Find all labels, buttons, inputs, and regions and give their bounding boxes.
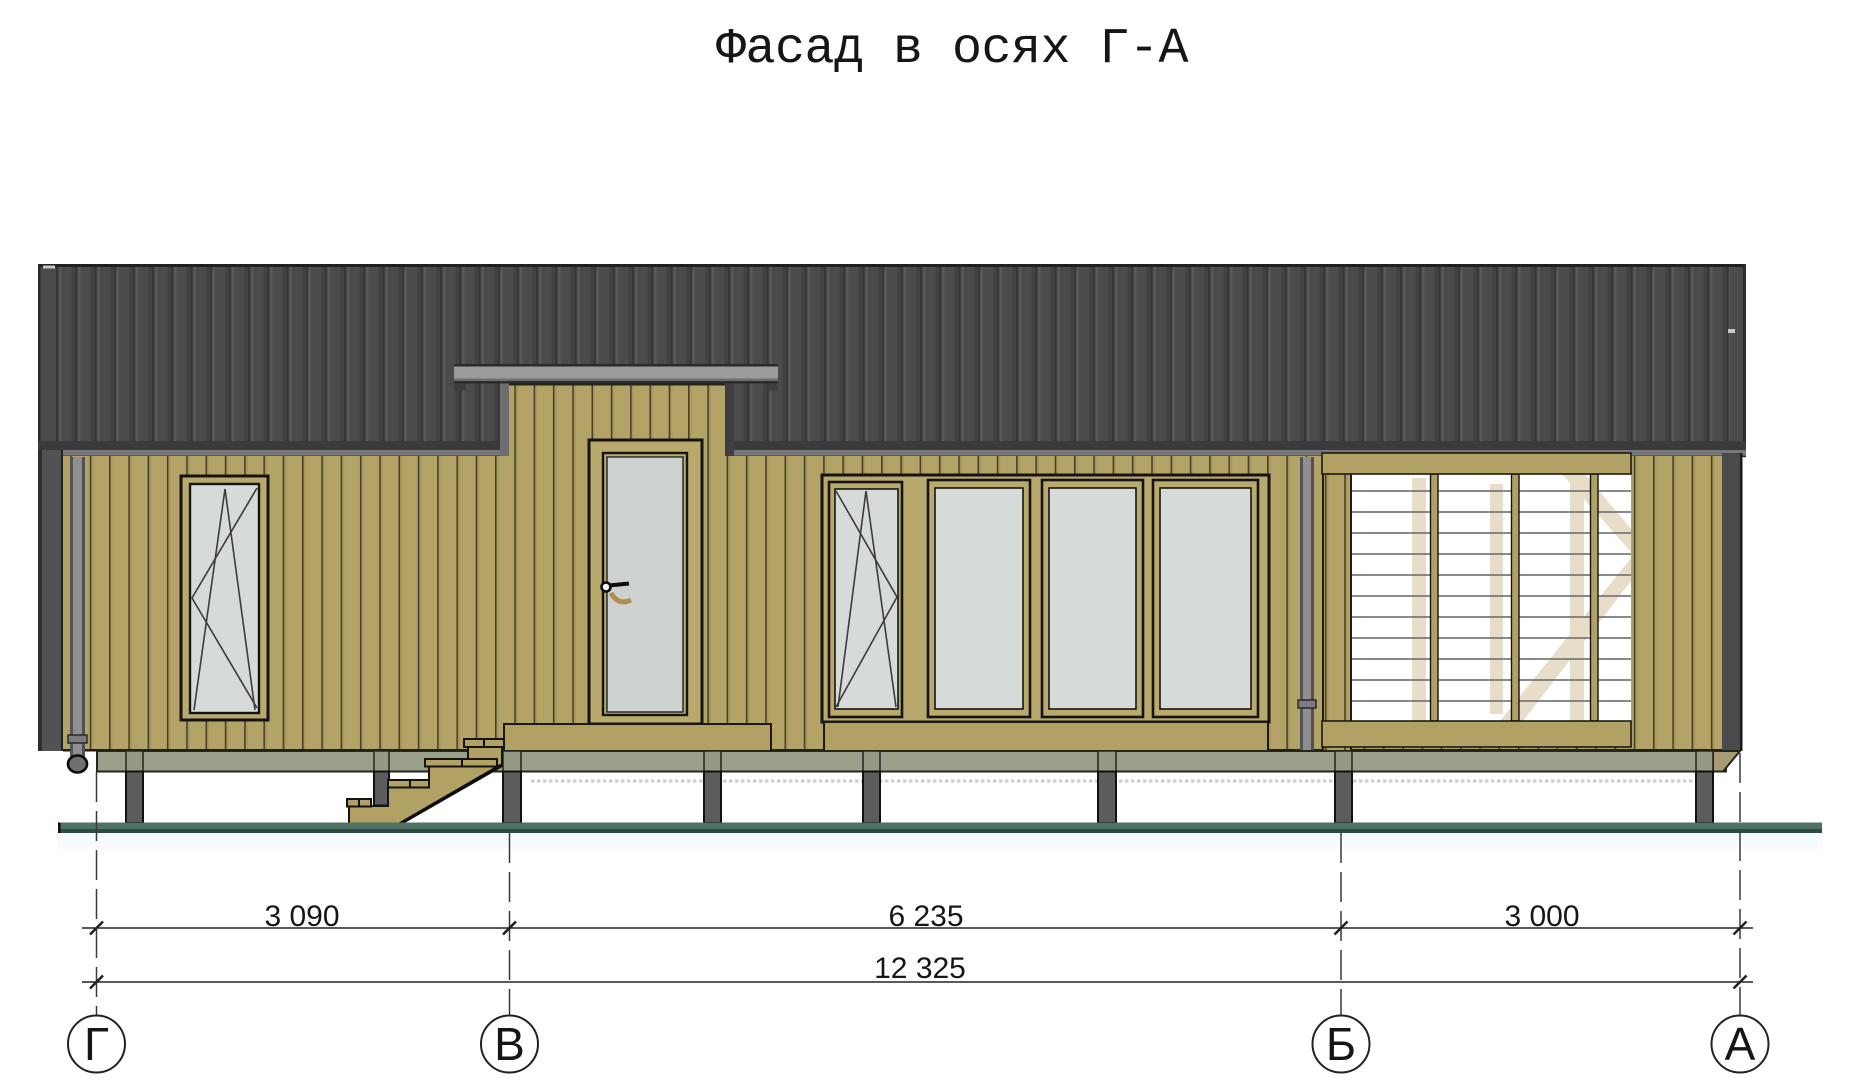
svg-text:Г: Г [84,1018,109,1070]
svg-text:3 090: 3 090 [264,900,339,933]
svg-text:А: А [1725,1018,1756,1070]
svg-text:В: В [494,1018,525,1070]
svg-text:3 000: 3 000 [1504,900,1579,933]
svg-text:Б: Б [1326,1018,1356,1070]
svg-text:12 325: 12 325 [874,952,966,985]
svg-text:Фасад в осях Г-А: Фасад в осях Г-А [716,21,1189,78]
svg-text:6 235: 6 235 [888,900,963,933]
